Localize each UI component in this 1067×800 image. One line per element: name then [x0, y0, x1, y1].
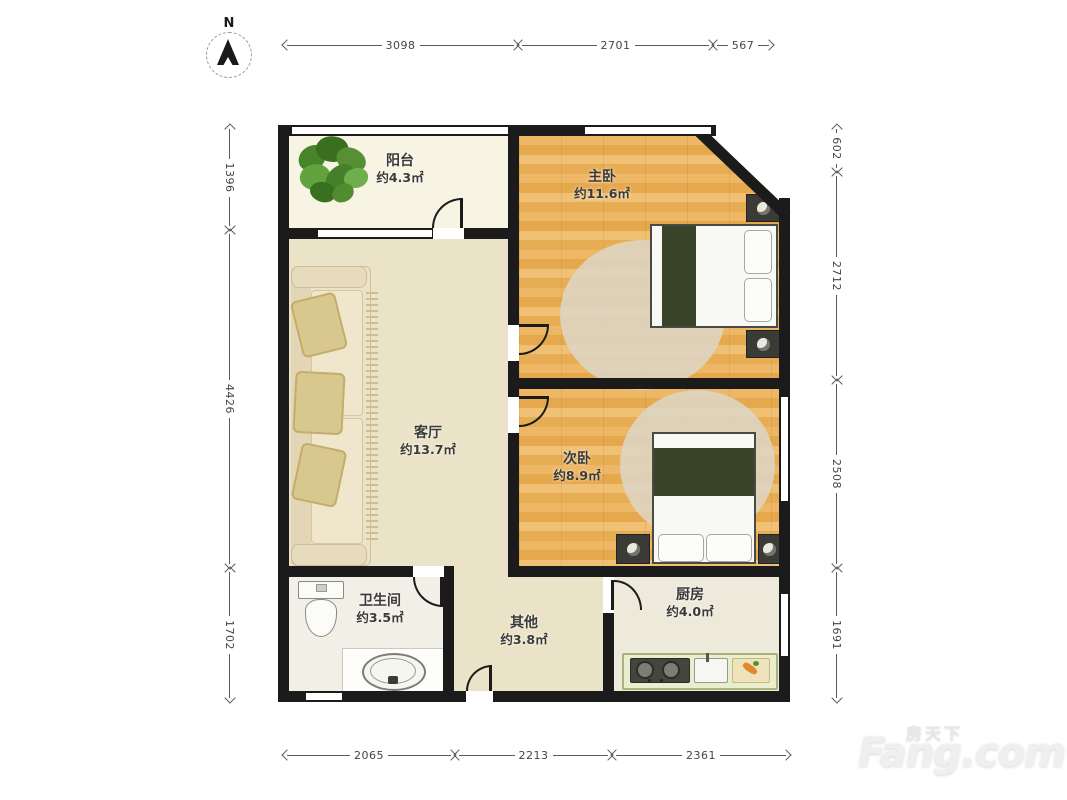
- sofa-pillow: [292, 371, 345, 436]
- floor-plan-image: N 3098 2701 567 2065 2213 2361 1396 4426…: [0, 0, 1067, 800]
- door-leaf: [519, 324, 549, 327]
- pillow: [658, 534, 704, 562]
- dimension-left-1: 1396: [222, 125, 238, 230]
- faucet-icon: [388, 676, 398, 684]
- wall: [278, 691, 790, 702]
- window: [318, 228, 432, 239]
- dimension-bottom-1: 2065: [283, 747, 455, 763]
- pillow: [744, 278, 772, 322]
- dimension-right-1: 602: [829, 125, 845, 172]
- compass-arrow-notch: [223, 57, 233, 66]
- stove-burner-icon: [662, 661, 680, 679]
- door-leaf: [519, 396, 549, 399]
- nightstand: [616, 534, 650, 564]
- window: [292, 125, 508, 136]
- room-label-bathroom: 卫生间约3.5㎡: [320, 592, 440, 626]
- dimension-left-3: 1702: [222, 568, 238, 702]
- room-label-living: 客厅约13.7㎡: [368, 424, 488, 458]
- dimension-right-2: 2712: [829, 172, 845, 380]
- compass-north-label: N: [221, 16, 237, 31]
- dimension-bottom-3: 2361: [612, 747, 790, 763]
- dimension-right-3: 2508: [829, 380, 845, 568]
- wall: [519, 566, 779, 577]
- dimension-top-1: 3098: [283, 37, 518, 53]
- lamp-icon: [627, 543, 640, 556]
- lamp-icon: [757, 338, 770, 351]
- window: [779, 397, 790, 501]
- kitchen-sink: [694, 658, 728, 683]
- window: [779, 594, 790, 656]
- wall: [443, 577, 454, 691]
- stove-burner-icon: [636, 661, 654, 679]
- dimension-right-4: 1691: [829, 568, 845, 702]
- toilet-button: [316, 584, 327, 592]
- nightstand: [758, 534, 781, 564]
- room-label-other: 其他约3.8㎡: [469, 614, 579, 648]
- room-label-kitchen: 厨房约4.0㎡: [630, 586, 750, 620]
- door-leaf: [440, 577, 443, 607]
- door-opening: [413, 566, 444, 577]
- hallway-connector-floor: [454, 566, 508, 577]
- window: [306, 691, 342, 702]
- master-bed-blanket: [662, 226, 696, 326]
- dimension-top-2: 2701: [518, 37, 713, 53]
- fang-watermark-logo: 房天下 Fang.com: [858, 718, 1063, 793]
- nightstand: [746, 330, 780, 358]
- wall: [519, 378, 779, 389]
- room-label-master: 主卧约11.6㎡: [540, 168, 664, 202]
- sofa-armrest: [291, 544, 367, 566]
- dimension-top-3: 567: [713, 37, 773, 53]
- door-leaf: [611, 580, 614, 610]
- carrot-leaf-icon: [753, 661, 759, 666]
- room-label-balcony: 阳台约4.3㎡: [350, 152, 450, 186]
- door-opening: [508, 325, 519, 361]
- wall: [278, 125, 289, 702]
- fang-watermark-en: Fang.com: [858, 730, 1065, 776]
- entry-door-opening: [466, 691, 493, 702]
- stove-knob: [648, 679, 651, 682]
- dimension-left-2: 4426: [222, 230, 238, 568]
- room-label-second: 次卧约8.9㎡: [522, 450, 632, 484]
- second-bed-blanket: [654, 448, 754, 496]
- door-opening: [433, 228, 464, 239]
- sofa-armrest: [291, 266, 367, 288]
- kitchen-faucet-icon: [706, 653, 709, 662]
- door-opening: [508, 397, 519, 433]
- pillow: [706, 534, 752, 562]
- pillow: [744, 230, 772, 274]
- door-leaf: [460, 198, 463, 228]
- door-leaf: [489, 665, 492, 691]
- sofa-fringe: [366, 292, 378, 542]
- dimension-bottom-2: 2213: [455, 747, 612, 763]
- stove-knob: [660, 679, 663, 682]
- window: [585, 125, 711, 136]
- lamp-icon: [763, 543, 776, 556]
